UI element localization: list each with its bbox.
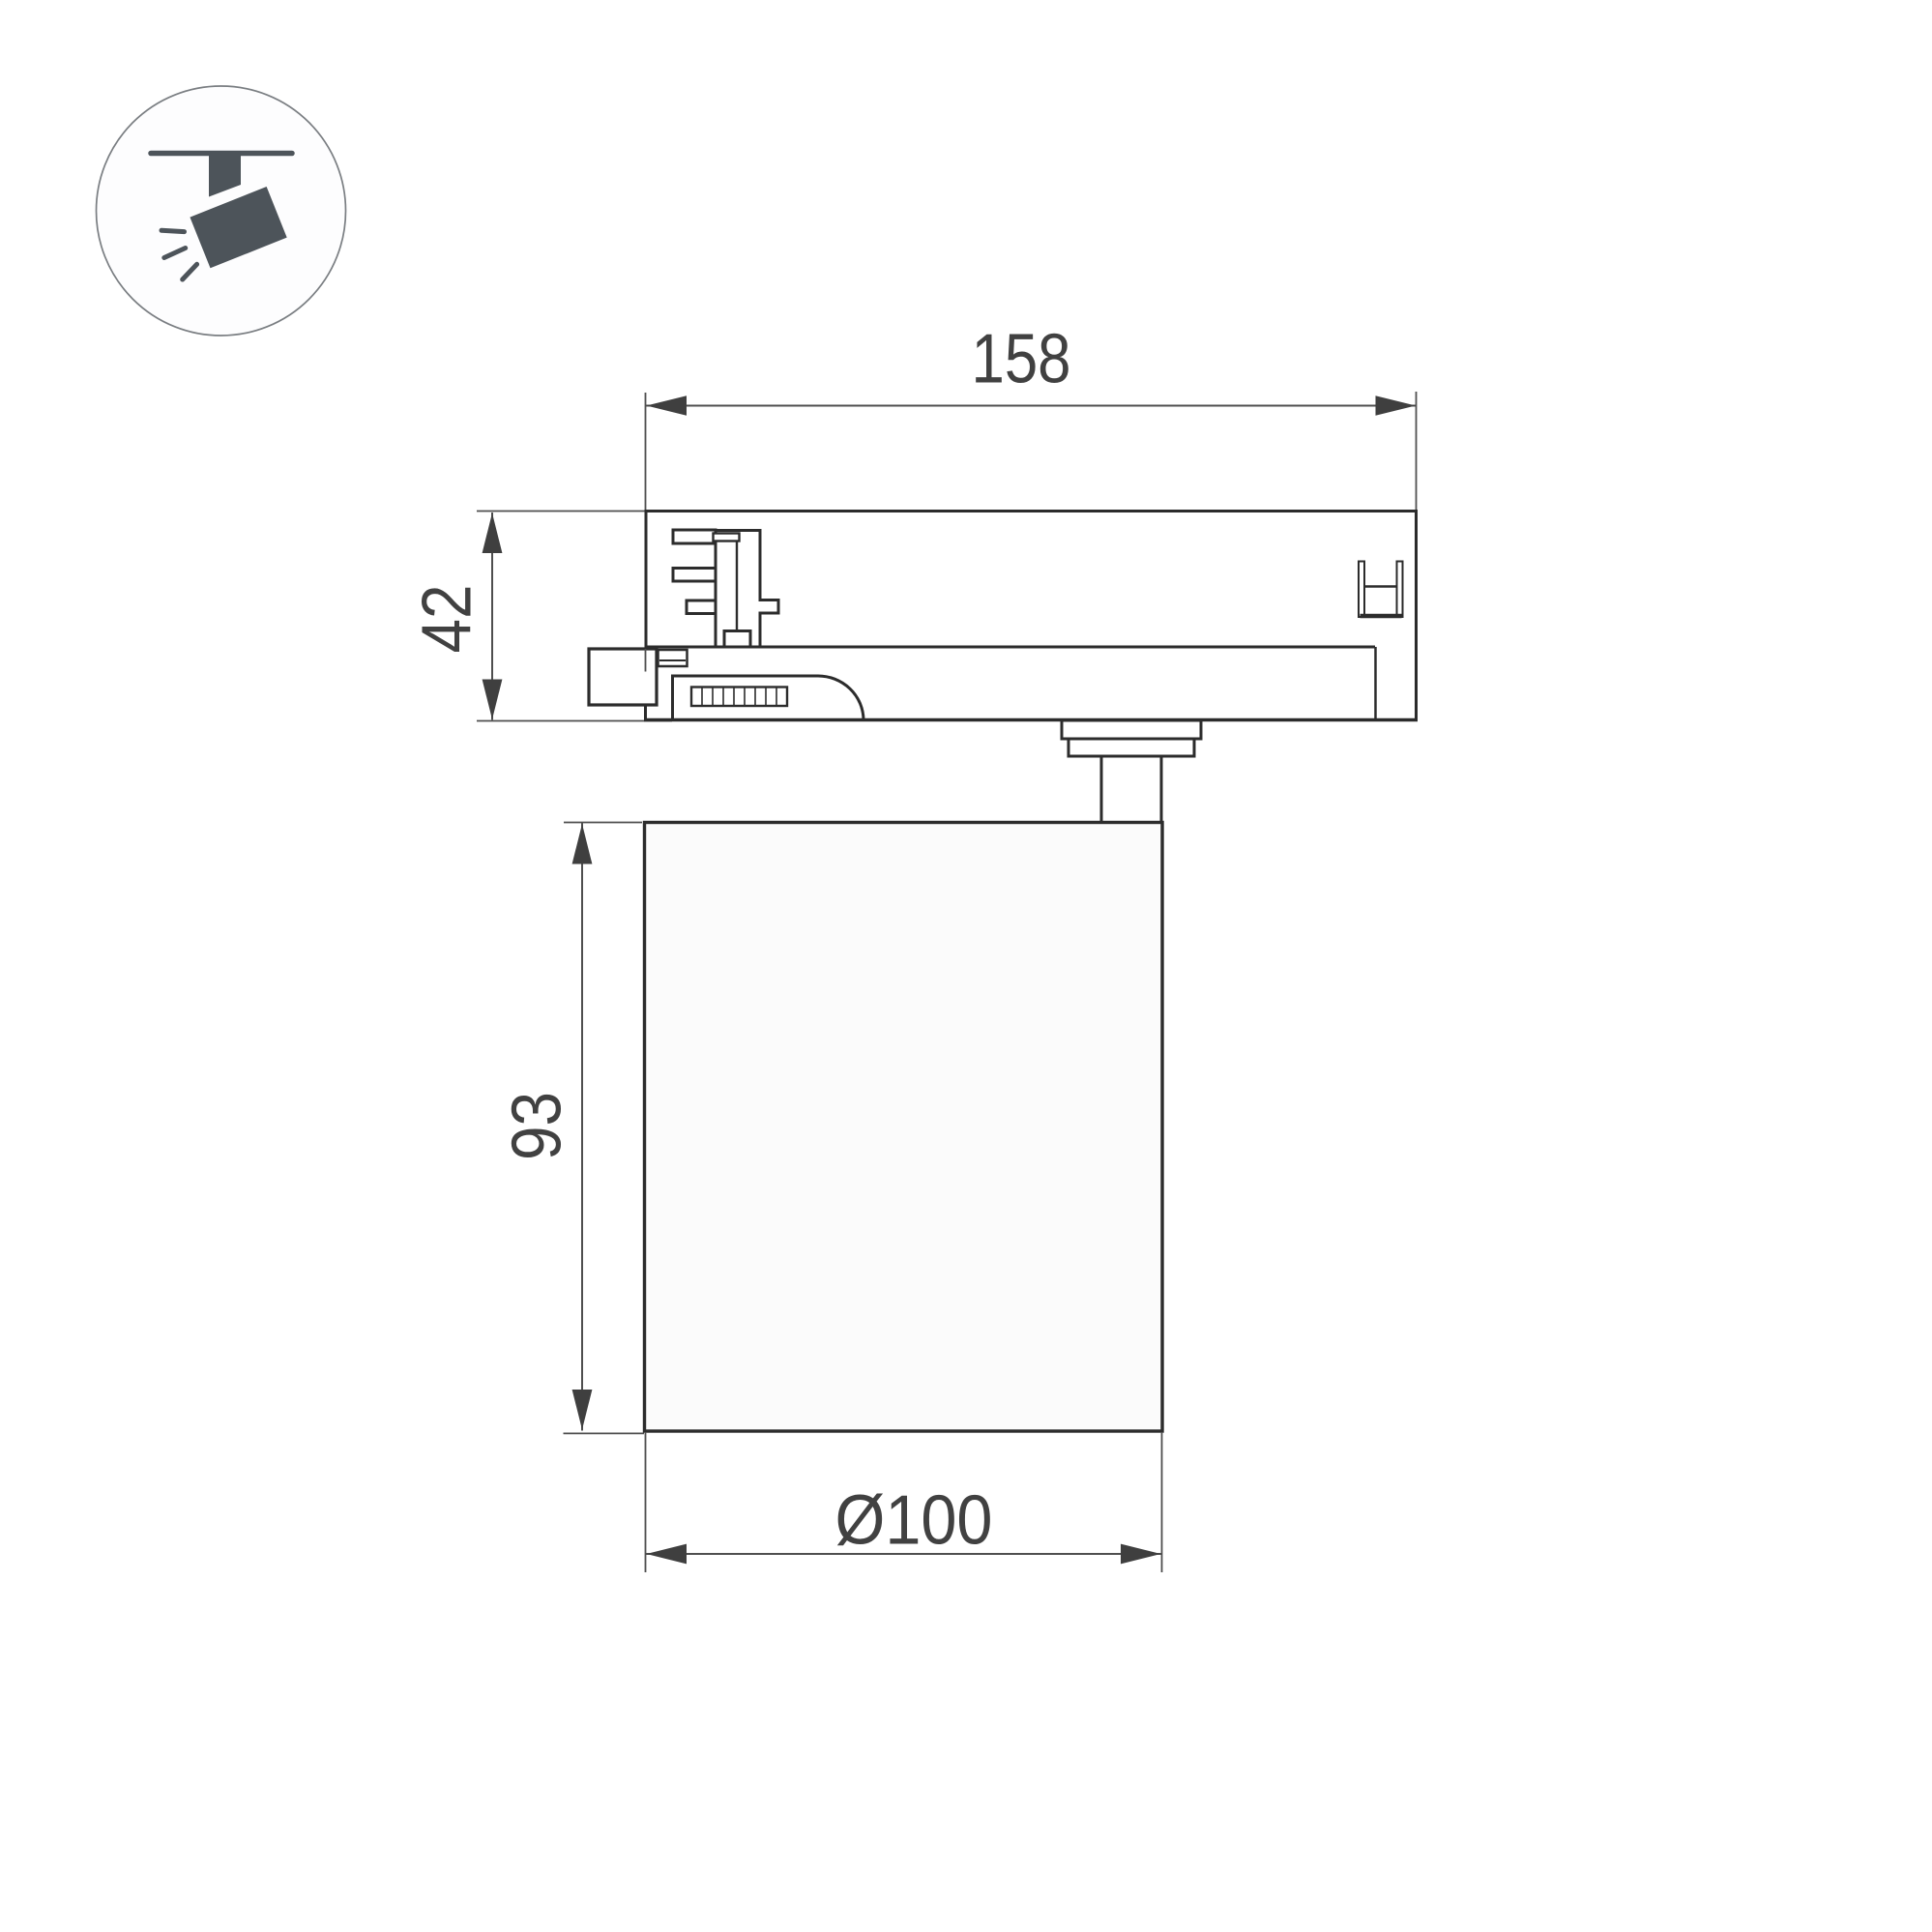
svg-text:42: 42	[409, 585, 486, 654]
svg-text:158: 158	[972, 321, 1071, 398]
svg-text:Ø100: Ø100	[835, 1482, 993, 1560]
svg-text:93: 93	[499, 1092, 576, 1160]
